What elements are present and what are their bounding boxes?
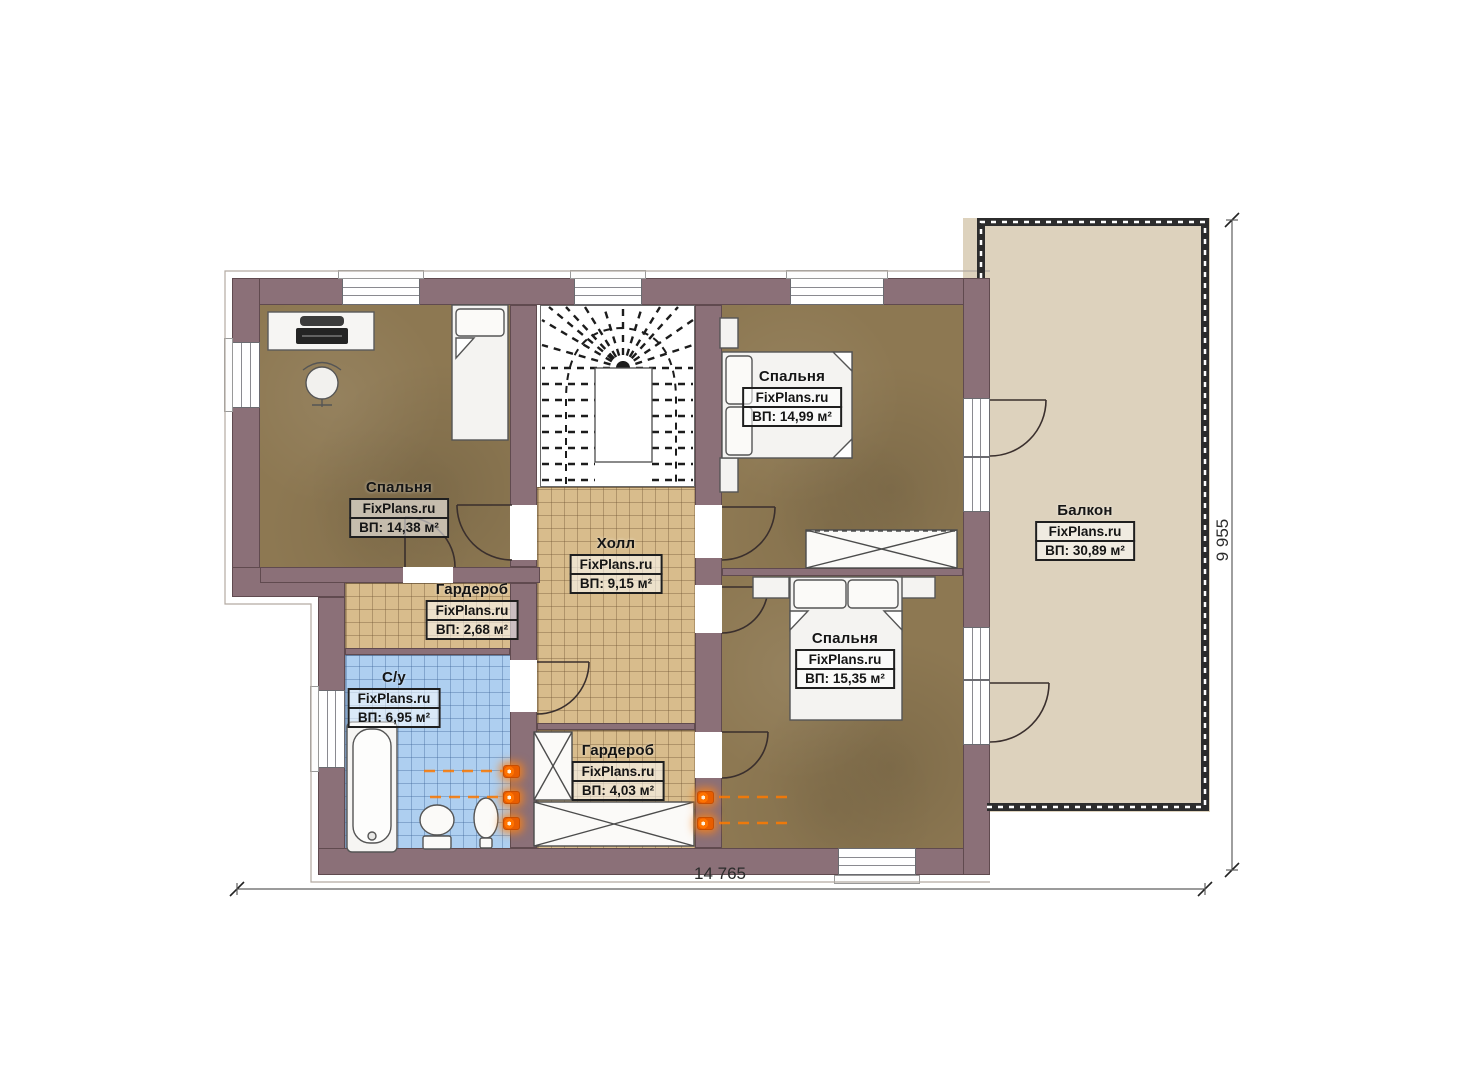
window-bottom-bedroom3-sill (834, 875, 920, 884)
window-left-bathroom (318, 690, 345, 768)
brand-badge: FixPlans.ru (572, 761, 665, 782)
door-opening-bedroom2 (695, 505, 722, 558)
room-label-bedroom-top-left: Спальня FixPlans.ru ВП: 14,38 м² (349, 479, 449, 538)
area-badge: ВП: 15,35 м² (795, 668, 895, 689)
area-badge: ВП: 30,89 м² (1035, 540, 1135, 561)
room-label-bedroom-bottom-right: Спальня FixPlans.ru ВП: 15,35 м² (795, 630, 895, 689)
room-name: Спальня (795, 630, 895, 647)
brand-badge: FixPlans.ru (349, 498, 449, 519)
heating-valve-icon (697, 817, 714, 830)
brand-badge: FixPlans.ru (795, 649, 895, 670)
balcony-door-bedroom2 (963, 398, 990, 457)
room-label-wardrobe-small: Гардероб FixPlans.ru ВП: 2,68 м² (426, 581, 519, 640)
stairwell-area (540, 305, 695, 487)
area-badge: ВП: 14,99 м² (742, 406, 842, 427)
window-bottom-bedroom3 (838, 848, 916, 875)
floor-plan-canvas: Спальня FixPlans.ru ВП: 14,38 м² Спальня… (0, 0, 1473, 1080)
room-label-wardrobe-large: Гардероб FixPlans.ru ВП: 4,03 м² (572, 742, 665, 801)
brand-badge: FixPlans.ru (570, 554, 663, 575)
wall-right (963, 278, 990, 875)
dimension-height-label: 9 955 (1213, 495, 1233, 585)
brand-badge: FixPlans.ru (742, 387, 842, 408)
balcony-door-bedroom3 (963, 680, 990, 745)
dimension-width-label: 14 765 (670, 864, 770, 884)
window-left-bedroom1 (232, 342, 260, 408)
room-name: Балкон (1035, 502, 1135, 519)
door-opening-bedroom3 (695, 585, 722, 633)
brand-badge: FixPlans.ru (1035, 521, 1135, 542)
bedroom-top-right-floor (722, 305, 963, 568)
room-label-bedroom-top-right: Спальня FixPlans.ru ВП: 14,99 м² (742, 368, 842, 427)
window-top-2-sill (570, 270, 646, 279)
door-opening-bedroom1 (510, 505, 537, 560)
window-right-2 (963, 627, 990, 680)
area-badge: ВП: 6,95 м² (348, 707, 441, 728)
heating-valve-icon (503, 765, 520, 778)
window-top-1 (342, 278, 420, 305)
heating-valve-icon (503, 791, 520, 804)
window-left-bathroom-sill (310, 686, 319, 772)
brand-badge: FixPlans.ru (426, 600, 519, 621)
area-badge: ВП: 9,15 м² (570, 573, 663, 594)
heating-valve-icon (503, 817, 520, 830)
room-name: Гардероб (572, 742, 665, 759)
window-top-3-sill (786, 270, 888, 279)
window-right-1 (963, 457, 990, 512)
window-left-bedroom1-sill (224, 338, 233, 412)
room-label-hall: Холл FixPlans.ru ВП: 9,15 м² (570, 535, 663, 594)
wall-left-upper (232, 278, 260, 597)
room-name: Спальня (349, 479, 449, 496)
room-label-balcony: Балкон FixPlans.ru ВП: 30,89 м² (1035, 502, 1135, 561)
door-opening-bathroom (510, 660, 537, 712)
area-badge: ВП: 14,38 м² (349, 517, 449, 538)
room-name: С/у (348, 669, 441, 686)
window-top-2 (574, 278, 642, 305)
bedroom-bottom-right-floor (722, 576, 963, 848)
heating-valve-icon (697, 791, 714, 804)
wall-bath-top-divider (345, 648, 510, 655)
door-opening-bedroom3-wardrobe (695, 732, 722, 778)
room-name: Гардероб (426, 581, 519, 598)
window-top-3 (790, 278, 884, 305)
wall-bedroom2-3-divider (722, 568, 963, 576)
room-label-bathroom: С/у FixPlans.ru ВП: 6,95 м² (348, 669, 441, 728)
area-badge: ВП: 4,03 м² (572, 780, 665, 801)
area-badge: ВП: 2,68 м² (426, 619, 519, 640)
wall-wardrobe-large-top (537, 723, 695, 730)
window-top-1-sill (338, 270, 424, 279)
hall-floor (537, 487, 697, 725)
room-name: Спальня (742, 368, 842, 385)
room-name: Холл (570, 535, 663, 552)
brand-badge: FixPlans.ru (348, 688, 441, 709)
